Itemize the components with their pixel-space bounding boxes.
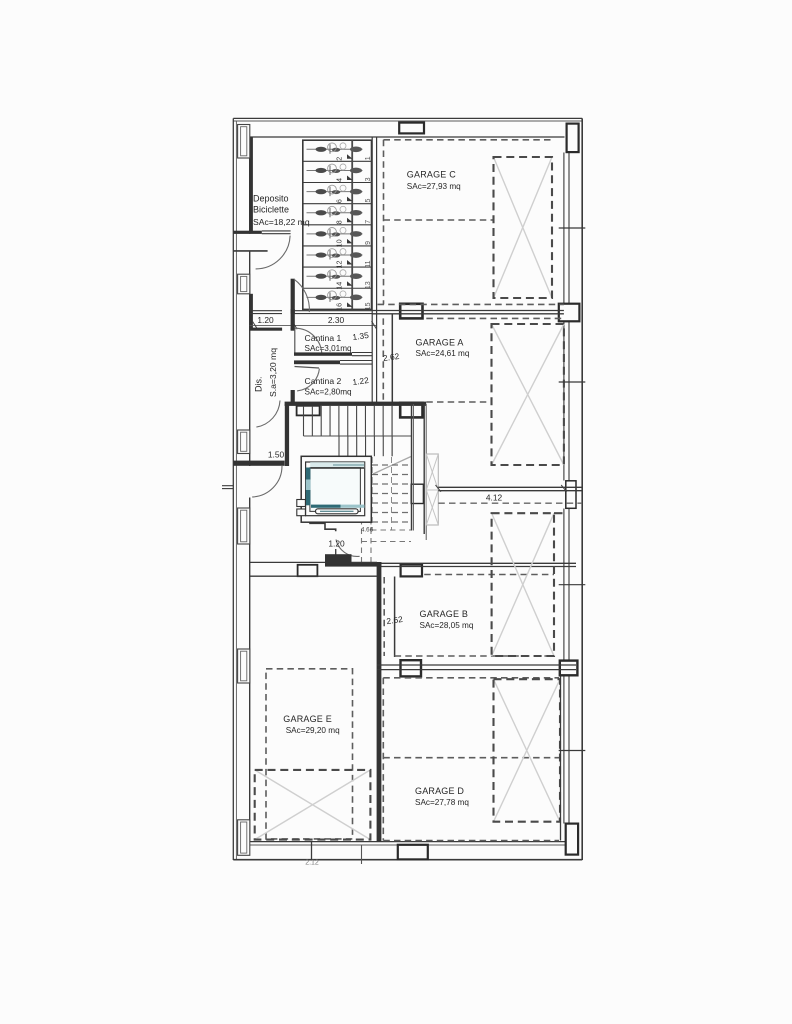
svg-text:10: 10 [335,239,344,247]
svg-text:3: 3 [365,177,372,181]
svg-text:4: 4 [335,178,344,182]
svg-text:Dis.: Dis. [254,377,264,393]
svg-text:5: 5 [365,199,372,203]
svg-text:SAc=18,22 mq: SAc=18,22 mq [253,217,310,227]
svg-text:Cantina 1: Cantina 1 [305,333,342,343]
svg-text:2.12: 2.12 [305,860,319,867]
svg-text:SAc=2,80mq: SAc=2,80mq [305,388,353,397]
svg-text:6: 6 [335,199,344,203]
svg-text:16: 16 [335,303,344,311]
svg-text:12: 12 [335,261,344,269]
svg-text:2: 2 [335,157,344,161]
svg-text:4.12: 4.12 [486,493,503,503]
svg-text:Cantina 2: Cantina 2 [305,376,342,386]
svg-text:GARAGE D: GARAGE D [415,786,464,796]
svg-text:2.30: 2.30 [328,315,345,325]
svg-text:4.66: 4.66 [361,527,374,534]
svg-text:GARAGE A: GARAGE A [416,337,464,347]
svg-text:GARAGE E: GARAGE E [283,714,332,724]
svg-text:S.a=3,20 mq: S.a=3,20 mq [268,348,278,397]
svg-text:Biciclette: Biciclette [253,204,289,214]
svg-text:8: 8 [335,220,344,224]
svg-text:7: 7 [365,220,372,224]
svg-text:SAc=28,05 mq: SAc=28,05 mq [420,621,474,630]
svg-text:11: 11 [365,260,372,267]
svg-text:GARAGE B: GARAGE B [420,609,469,619]
svg-text:SAc=29,20 mq: SAc=29,20 mq [286,726,340,735]
svg-text:1.20: 1.20 [257,315,274,325]
svg-text:9: 9 [365,241,372,245]
svg-text:1.50: 1.50 [268,450,285,460]
svg-text:SAc=27,78 mq: SAc=27,78 mq [415,798,469,807]
svg-text:1.20: 1.20 [328,539,345,549]
svg-text:1: 1 [365,156,372,160]
svg-text:Deposito: Deposito [253,193,289,203]
svg-text:GARAGE C: GARAGE C [407,170,456,180]
svg-text:SAc=3,01mq: SAc=3,01mq [305,344,353,353]
svg-text:14: 14 [335,282,344,290]
svg-text:15: 15 [365,302,372,310]
svg-text:13: 13 [365,281,372,289]
svg-text:SAc=27,93 mq: SAc=27,93 mq [407,182,461,191]
svg-text:SAc=24,61 mq: SAc=24,61 mq [416,349,470,358]
